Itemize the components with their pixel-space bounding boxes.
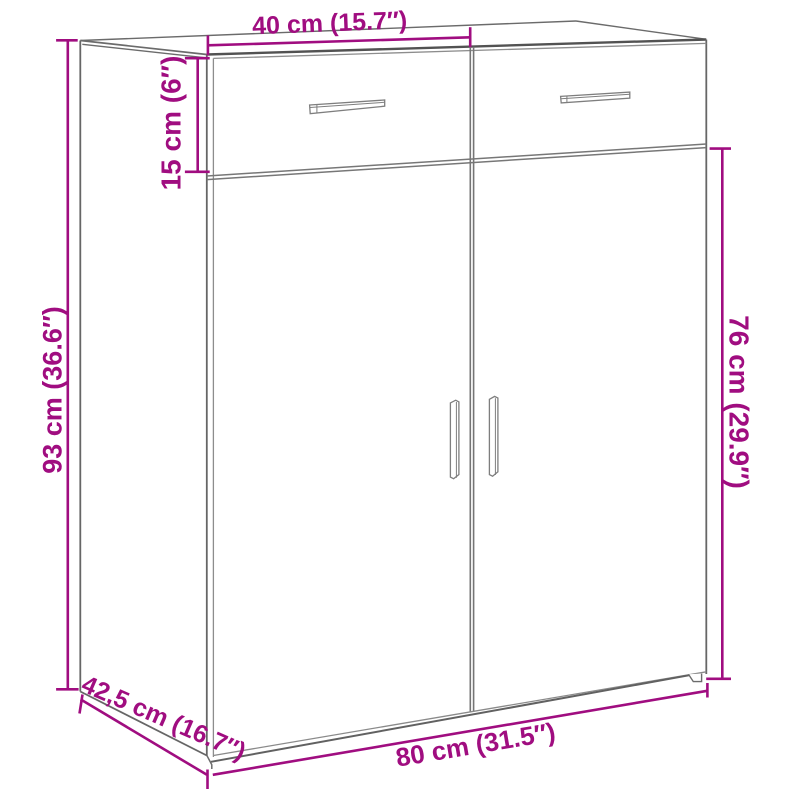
svg-text:40 cm (15.7″): 40 cm (15.7″): [252, 6, 408, 40]
svg-text:93 cm (36.6″): 93 cm (36.6″): [38, 306, 68, 474]
svg-text:15 cm (6″): 15 cm (6″): [156, 56, 187, 191]
svg-text:76 cm (29.9″): 76 cm (29.9″): [724, 315, 755, 489]
